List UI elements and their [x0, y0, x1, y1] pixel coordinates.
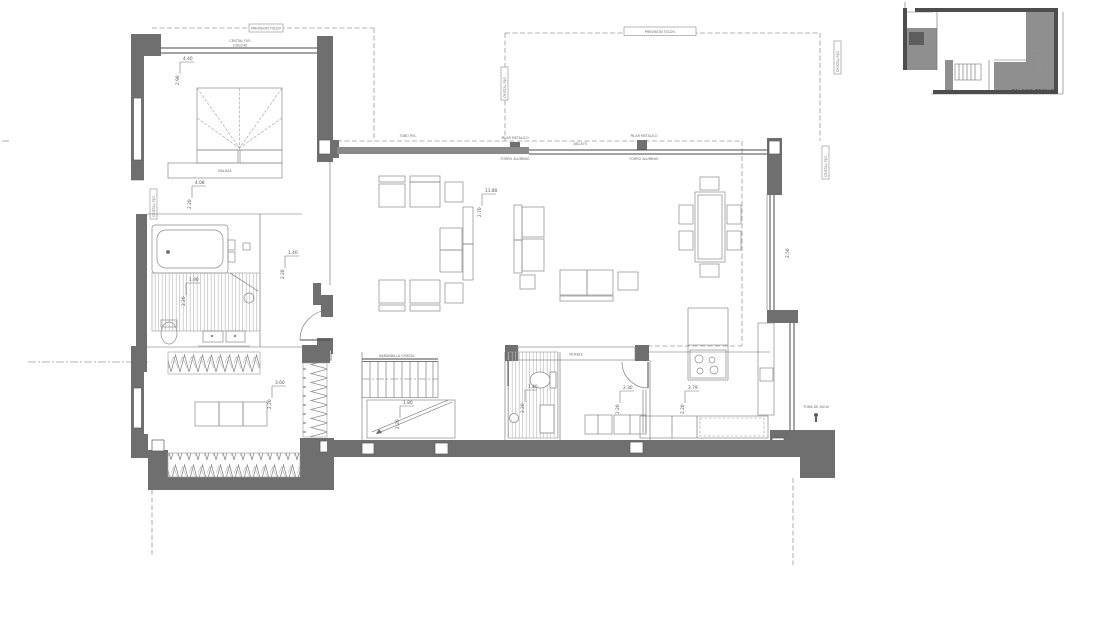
svg-text:2.30: 2.30: [623, 385, 633, 391]
barandilla-label: BARANDILLA CRISTAL: [379, 354, 415, 358]
svg-text:1.80: 1.80: [403, 400, 413, 406]
wc: [508, 352, 558, 438]
forro-aluminio-label-a: FORRO ALUMINIO: [501, 157, 530, 161]
svg-text:4.40: 4.40: [183, 56, 193, 62]
oven: [760, 368, 773, 381]
kitchen: [640, 308, 774, 438]
faucet: [211, 335, 213, 337]
kitchen-island: [688, 308, 728, 380]
stair-flight-upper: [362, 362, 438, 398]
dim-distribuidor: 1.40 2.20: [280, 250, 299, 279]
dining-chair: [679, 231, 693, 250]
dining-chair: [727, 231, 741, 250]
wardrobe-hangers: [303, 363, 327, 437]
wall-cabinet: [243, 243, 250, 250]
dining-chair: [700, 264, 719, 277]
stair-run-line: [376, 402, 452, 434]
glass-walls: [131, 48, 794, 440]
svg-text:2.20: 2.20: [187, 199, 193, 209]
svg-text:2.20: 2.20: [520, 403, 526, 413]
facade-dim: 2.50: [785, 248, 791, 258]
svg-text:11.80: 11.80: [485, 188, 498, 194]
dining-chair: [679, 205, 693, 224]
burner: [697, 368, 703, 374]
dresser-island: [219, 402, 243, 426]
toilet-cistern: [550, 372, 556, 388]
svg-text:2.70: 2.70: [477, 207, 483, 217]
burner: [709, 357, 715, 363]
prevision-toldo-label-b: PREVISION TOLDO: [645, 30, 676, 34]
ceiling-zone: [1026, 12, 1054, 90]
base-cabinets: [640, 416, 768, 438]
sofa-group-right: [514, 205, 638, 301]
dining-chair: [727, 205, 741, 224]
wardrobe: [585, 415, 612, 434]
mueble-label: MUEBLE: [569, 353, 583, 357]
falsos-techos-inset: FALSOS TECHOS: [903, 2, 1063, 95]
cristal-fijo-vertical-1: CRISTAL FIJO: [503, 77, 507, 98]
svg-text:2.20: 2.20: [181, 296, 187, 306]
ceiling-zone-dark: [909, 32, 924, 45]
ceiling-zone: [945, 60, 953, 90]
svg-text:2.20: 2.20: [395, 419, 401, 429]
cristal-fijo-size-label: 230x240: [233, 44, 248, 48]
master-bathroom: [152, 225, 260, 346]
dresser-island: [195, 402, 219, 426]
svg-text:4.08: 4.08: [195, 180, 205, 186]
svg-text:2.20: 2.20: [615, 404, 621, 414]
vanity: [540, 405, 554, 433]
pillar: [362, 443, 374, 454]
dim-pasillo: 4.08 2.20: [187, 180, 206, 209]
dim-escalera: 1.80 2.20: [395, 400, 414, 429]
cristal-fijo-vertical-2: CRISTAL FIJO: [824, 156, 828, 177]
ceiling-zone: [994, 62, 1027, 90]
bathtub-inner: [157, 230, 223, 268]
svg-text:3.79: 3.79: [688, 385, 698, 391]
dining-area: [679, 177, 741, 277]
baldas-label: BALDAS: [218, 169, 231, 173]
pillar: [769, 141, 780, 154]
svg-text:2.20: 2.20: [680, 404, 686, 414]
water-point-icon: [814, 413, 818, 417]
pillar: [630, 442, 643, 453]
dining-chair: [700, 177, 719, 190]
sink: [510, 414, 519, 423]
prevision-toldo-label-a: PREVISION TOLDO: [251, 27, 282, 31]
wardrobe-hangers: [168, 352, 260, 374]
toma-de-agua-label: TOMA DE AGUA: [802, 405, 830, 409]
wall-cabinet: [228, 252, 235, 262]
span-dimension-label: 280.875: [573, 142, 587, 146]
svg-text:2.20: 2.20: [280, 269, 286, 279]
pillar: [435, 443, 448, 454]
dim-dormitorio: 4.40 2.90: [175, 56, 194, 85]
burner: [695, 355, 703, 363]
dim-cocina: 3.79 2.20: [680, 385, 699, 414]
bathtub-drain: [166, 250, 170, 254]
window: [319, 140, 331, 154]
door-swing-arc: [622, 362, 648, 388]
dim-dormitorio2: 2.30 2.20: [615, 385, 634, 414]
dresser-island: [243, 402, 267, 426]
falsos-techos-label: FALSOS TECHOS: [1012, 89, 1058, 95]
pillar: [152, 440, 164, 451]
bed-foot-bench: [240, 150, 282, 163]
svg-text:3.60: 3.60: [275, 380, 285, 386]
svg-text:1.90: 1.90: [189, 277, 199, 283]
pilar-metalico-label-a: PILAR METALICO: [501, 136, 529, 140]
bathtub: [152, 225, 228, 273]
window: [134, 98, 142, 160]
staircase: BARANDILLA CRISTAL: [362, 354, 455, 438]
master-bedroom: BALDAS: [168, 88, 282, 178]
pilar-metalico-label-b: PILAR METALICO: [630, 134, 658, 138]
faucet: [234, 335, 236, 337]
sofa-group-left: [379, 176, 473, 311]
forro-aluminio-label-b: FORRO ALUMINIO: [630, 157, 659, 161]
svg-text:1.40: 1.40: [528, 384, 538, 390]
tall-units: [758, 323, 774, 415]
toma-de-agua-annotation: TOMA DE AGUA: [802, 405, 830, 422]
cristal-fijo-label: CRISTAL FIJO: [230, 39, 251, 43]
svg-text:2.90: 2.90: [175, 75, 181, 85]
bed-foot-bench: [197, 150, 238, 163]
wardrobe-hangers: [168, 453, 300, 477]
svg-text:1.40: 1.40: [288, 250, 298, 256]
floor-plan-drawing: PREVISION TOLDO PREVISION TOLDO CRISTAL …: [0, 0, 1110, 626]
projection-dashed-lines: [2, 28, 820, 565]
cristal-fijo-vertical-3: CRISTAL FIJO: [836, 51, 840, 72]
living-room: [379, 176, 638, 311]
burner: [710, 366, 718, 374]
structural-walls: [131, 34, 835, 490]
forro-aluminio-beam: [337, 147, 529, 154]
dining-table-inner: [698, 195, 722, 259]
cooktop: [690, 350, 726, 378]
dim-vestidor: 3.60 2.20: [267, 380, 286, 409]
wall-cabinet: [228, 240, 235, 250]
glass-railing: [362, 359, 438, 362]
tubo-pvc-label: TUBO PVC: [399, 134, 418, 138]
under-counter-appliance: [700, 418, 764, 436]
pilar-metalico: [637, 140, 647, 150]
floor-plan-canvas: PREVISION TOLDO PREVISION TOLDO CRISTAL …: [0, 0, 1110, 626]
dining-table: [695, 192, 725, 262]
dim-salon: 11.80 2.70: [477, 188, 498, 217]
svg-text:2.20: 2.20: [267, 399, 273, 409]
bedroom-2: [585, 362, 648, 434]
window: [134, 388, 142, 428]
